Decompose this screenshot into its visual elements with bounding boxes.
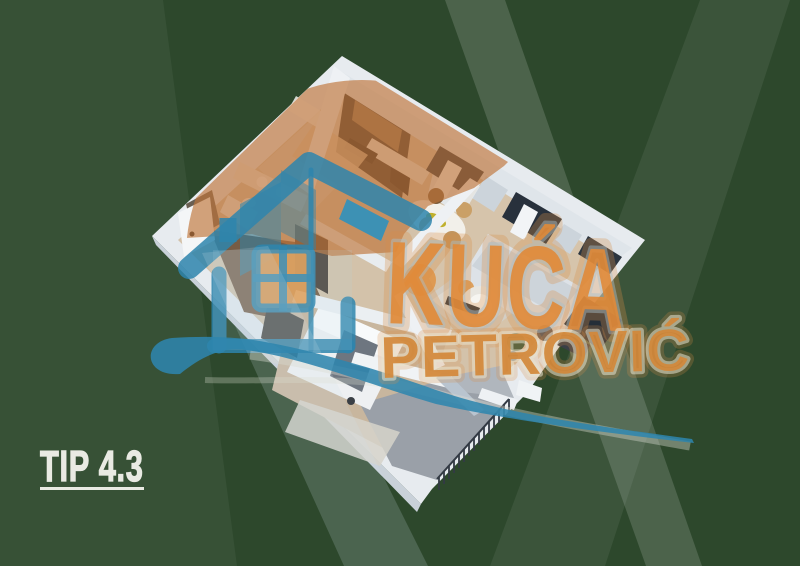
- svg-text:TIP 4.3: TIP 4.3: [40, 443, 144, 492]
- svg-text:PETROVIĆ: PETROVIĆ: [380, 317, 691, 391]
